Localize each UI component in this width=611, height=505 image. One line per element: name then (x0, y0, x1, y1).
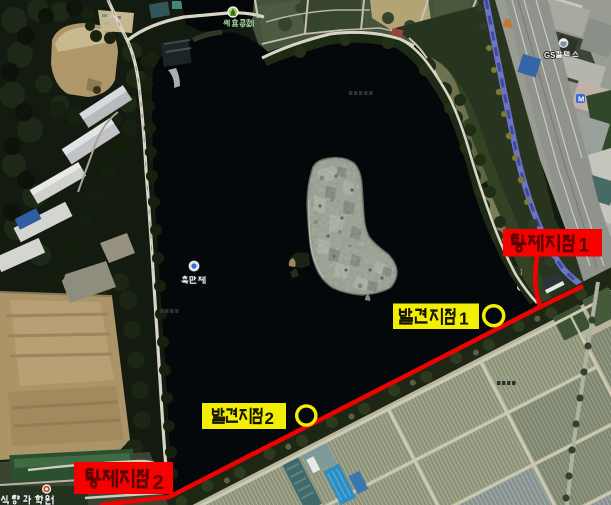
svg-text:M: M (578, 95, 584, 104)
svg-text:2: 2 (153, 472, 164, 494)
svg-text:GS: GS (544, 51, 555, 60)
svg-text:2: 2 (265, 409, 274, 428)
svg-text:1: 1 (459, 309, 469, 329)
svg-text:1: 1 (579, 236, 590, 257)
